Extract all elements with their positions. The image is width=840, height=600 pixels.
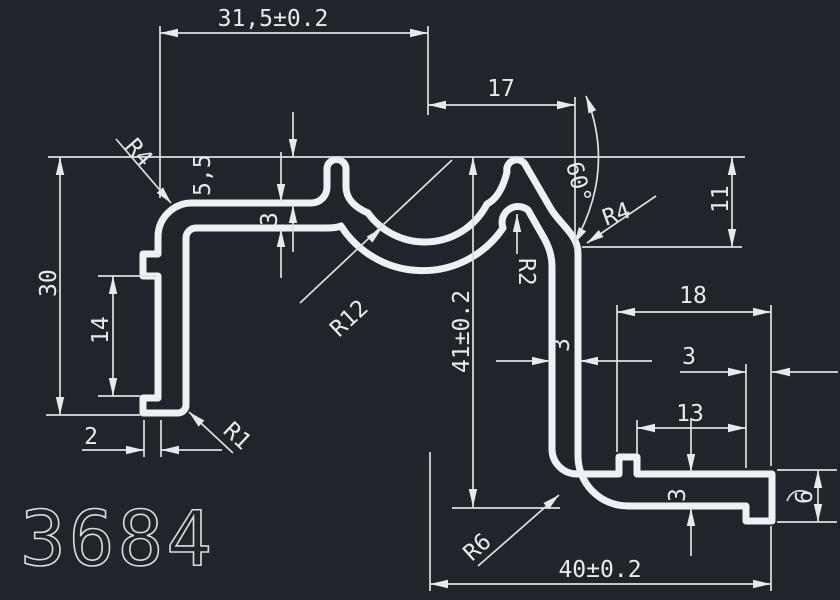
dim-label-30: 30 bbox=[36, 269, 62, 297]
dim-label-3-arm: 3 bbox=[665, 488, 691, 502]
dim-label-60deg: 60° bbox=[560, 159, 595, 206]
dim-label-3-rightwall: 3 bbox=[549, 338, 575, 352]
dim-label-41: 41±0.2 bbox=[449, 290, 475, 373]
dim-label-13: 13 bbox=[676, 401, 704, 427]
dim-label-3-foot: 3 bbox=[682, 344, 696, 370]
part-number: 3684 bbox=[20, 494, 215, 583]
dim-label-r4-left: R4 bbox=[119, 134, 157, 172]
arrowhead bbox=[582, 94, 596, 113]
dim-label-r2: R2 bbox=[513, 258, 539, 286]
dim-label-11: 11 bbox=[708, 185, 734, 213]
dim-label-14: 14 bbox=[88, 316, 114, 344]
arrowhead bbox=[585, 230, 604, 246]
dim-label-2: 2 bbox=[84, 424, 98, 450]
dim-label-6: 6 bbox=[792, 490, 818, 504]
dim-label-r12: R12 bbox=[325, 295, 373, 342]
dim-label-r6: R6 bbox=[459, 529, 497, 567]
dim-label-18: 18 bbox=[679, 283, 707, 309]
dim-label-17: 17 bbox=[487, 76, 515, 102]
dim-label-r4-right: R4 bbox=[599, 198, 634, 232]
dim-label-3-topwall: 3 bbox=[257, 212, 283, 226]
drawing-canvas: 31,5±0.2 17 60° 11 R4 5,5 3 30 bbox=[0, 0, 840, 600]
dim-label-r1: R1 bbox=[218, 417, 256, 455]
dim-label-5-5: 5,5 bbox=[190, 154, 216, 196]
dim-label-40: 40±0.2 bbox=[558, 557, 641, 583]
dim-label-top-width: 31,5±0.2 bbox=[218, 6, 329, 32]
cad-viewport[interactable]: 31,5±0.2 17 60° 11 R4 5,5 3 30 bbox=[0, 0, 840, 600]
